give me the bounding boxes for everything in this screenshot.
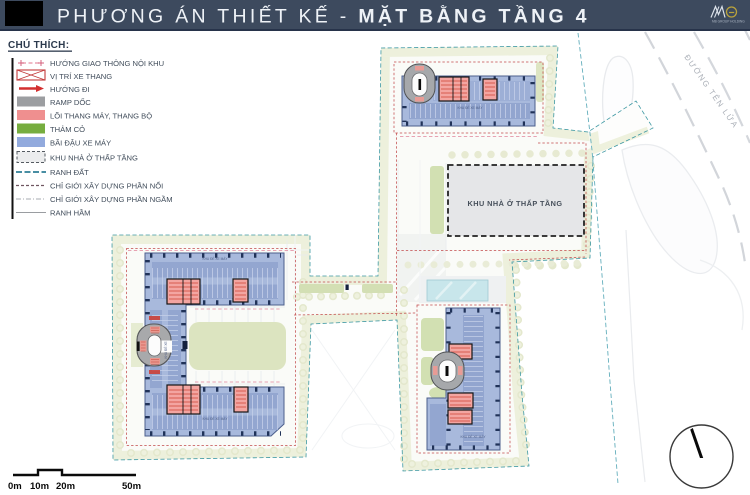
svg-text:BÃI ĐẬU XE MÁY: BÃI ĐẬU XE MÁY bbox=[50, 139, 111, 148]
svg-text:RANH ĐẤT: RANH ĐẤT bbox=[50, 167, 89, 177]
svg-text:KHU ĐỂ XE MÁY: KHU ĐỂ XE MÁY bbox=[203, 416, 229, 421]
svg-text:CHÚ THÍCH:: CHÚ THÍCH: bbox=[8, 38, 69, 51]
svg-text:HƯỚNG ĐI: HƯỚNG ĐI bbox=[50, 85, 90, 94]
svg-text:PHƯƠNG ÁN THIẾT KẾ - MẶT BẰNG: PHƯƠNG ÁN THIẾT KẾ - MẶT BẰNG TẦNG 4 bbox=[57, 4, 590, 28]
svg-text:RANH HẦM: RANH HẦM bbox=[50, 208, 91, 218]
svg-text:20m: 20m bbox=[56, 481, 75, 492]
svg-text:CHỈ GIỚI XÂY DỰNG PHẦN NGẦM: CHỈ GIỚI XÂY DỰNG PHẦN NGẦM bbox=[50, 194, 173, 204]
svg-text:50m: 50m bbox=[122, 481, 141, 492]
svg-text:RAMP DỐC: RAMP DỐC bbox=[50, 97, 91, 107]
svg-text:KHU ĐỂ XE MÁY: KHU ĐỂ XE MÁY bbox=[203, 256, 229, 261]
svg-text:KHU NHÀ Ở THẤP TẦNG: KHU NHÀ Ở THẤP TẦNG bbox=[50, 153, 138, 163]
svg-text:MB GROUP HOLDING: MB GROUP HOLDING bbox=[712, 20, 745, 24]
svg-text:CHỈ GIỚI XÂY DỰNG PHẦN NỔI: CHỈ GIỚI XÂY DỰNG PHẦN NỔI bbox=[50, 181, 163, 191]
svg-text:10m: 10m bbox=[30, 481, 49, 492]
svg-text:VỊ TRÍ XE THANG: VỊ TRÍ XE THANG bbox=[50, 72, 112, 81]
svg-text:KHU NHÀ Ở THẤP TẦNG: KHU NHÀ Ở THẤP TẦNG bbox=[468, 198, 563, 208]
svg-text:LÕI THANG MÁY, THANG BỘ: LÕI THANG MÁY, THANG BỘ bbox=[50, 112, 152, 121]
svg-text:KHU ĐỂ XE: KHU ĐỂ XE bbox=[163, 341, 168, 358]
svg-text:THẢM CỎ: THẢM CỎ bbox=[50, 125, 85, 134]
svg-text:KHU ĐỂ XE MÁY: KHU ĐỂ XE MÁY bbox=[461, 434, 487, 439]
svg-text:0m: 0m bbox=[8, 481, 22, 492]
svg-text:KHU ĐỂ XE MÁY: KHU ĐỂ XE MÁY bbox=[458, 105, 484, 110]
svg-text:HƯỚNG GIAO THÔNG NỘI KHU: HƯỚNG GIAO THÔNG NỘI KHU bbox=[50, 59, 164, 68]
